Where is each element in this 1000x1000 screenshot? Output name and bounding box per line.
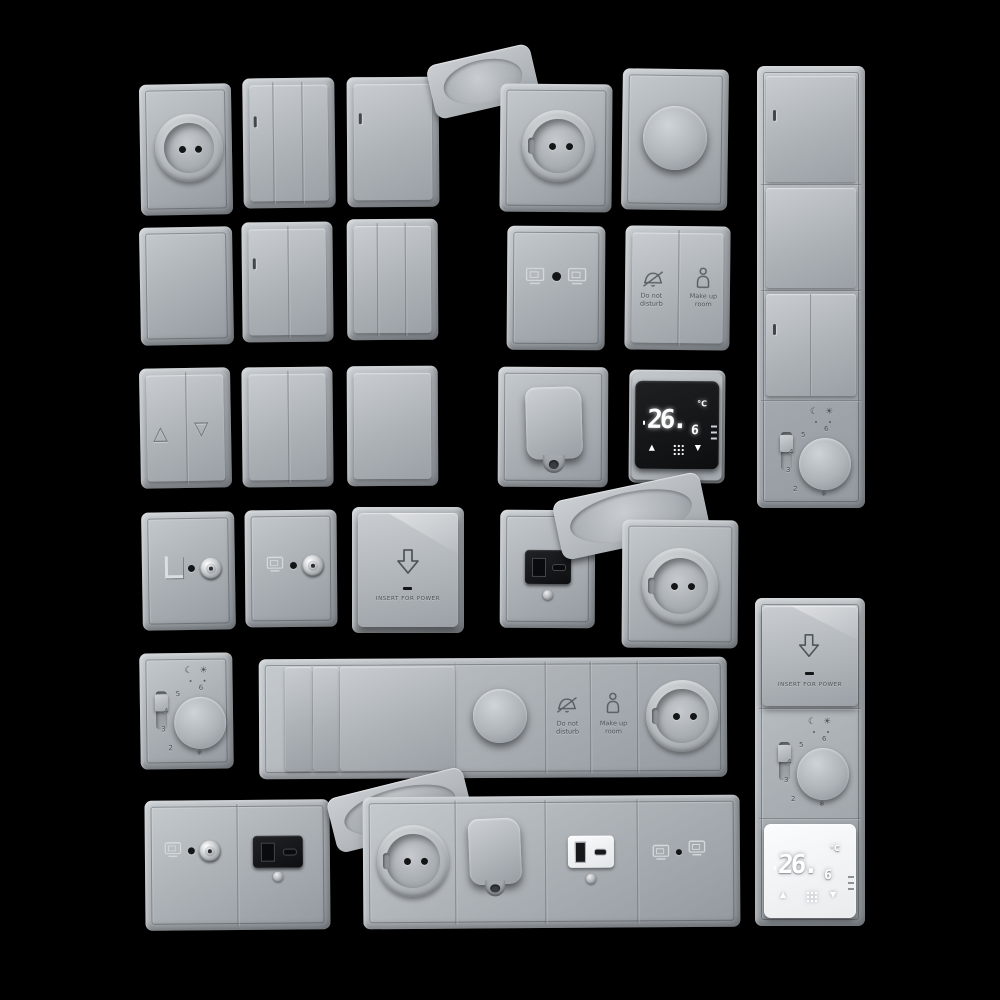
temperature-value: 26. xyxy=(646,405,686,435)
temperature-value: 26. xyxy=(777,850,817,880)
make-up-room-icon xyxy=(603,691,623,715)
usb-a-port xyxy=(532,558,546,577)
side-buttons xyxy=(848,876,854,894)
switch-rocker xyxy=(354,84,433,201)
socket-recess xyxy=(655,689,709,743)
switch-rocker xyxy=(766,76,856,182)
socket-ground-slot xyxy=(648,578,655,594)
temperature-decimal: 6 xyxy=(691,423,700,438)
jack-hole xyxy=(290,562,297,569)
temperature-dial xyxy=(799,438,851,490)
jack-hole xyxy=(188,847,195,854)
shutter-down-icon: ▽ xyxy=(194,418,209,440)
dial-number: 2 xyxy=(791,795,795,803)
plate-socket-lidded xyxy=(499,84,612,213)
plate-switch-2gang xyxy=(241,222,333,343)
dial-number: 5 xyxy=(799,741,803,749)
temp-up-button: ▲ xyxy=(649,443,655,452)
panel-vertical-multiswitch: ☾ ☀ 6 5 4 3 2 ❄ xyxy=(757,66,865,508)
socket-ground-slot xyxy=(528,138,535,154)
plate-keycard-holder: INSERT FOR POWER xyxy=(352,507,464,633)
center-jack-hole xyxy=(552,272,561,281)
do-not-disturb-label: Do not disturb xyxy=(545,719,590,735)
temperature-decimal: 6 xyxy=(824,868,833,883)
dial-number: 4 xyxy=(789,448,793,456)
dial-thermostat: ☾ ☀ 6 5 4 3 2 ❄ xyxy=(140,662,231,763)
temperature-dial xyxy=(797,748,849,800)
section-divider xyxy=(761,184,861,186)
tv-jack-icon xyxy=(651,843,671,861)
switch-indicator xyxy=(773,110,776,121)
day-mode-icon: ☀ xyxy=(825,407,833,417)
temperature-unit: °C xyxy=(697,399,707,408)
menu-grid-icon xyxy=(806,891,817,902)
socket-pin-hole xyxy=(690,713,697,720)
panel-horizontal-combination: Do not disturb Make up room xyxy=(259,657,728,779)
socket-ground-slot xyxy=(652,708,659,724)
plate-double-tv-usb xyxy=(144,799,330,931)
panel-horizontal-outlets xyxy=(363,795,741,930)
socket-outlet xyxy=(522,110,595,183)
tv-jack-icon xyxy=(524,266,546,286)
switch-rocker-wide xyxy=(340,666,456,771)
plate-switch-1gang xyxy=(347,77,440,208)
switch-rocker-group xyxy=(249,85,328,202)
dial-number: 6 xyxy=(822,735,826,743)
dial-number: 6 xyxy=(824,425,828,433)
do-not-disturb-label: Do not disturb xyxy=(629,291,674,308)
day-mode-icon: ☀ xyxy=(823,717,831,727)
frost-symbol: ❄ xyxy=(197,749,203,757)
tv-jack-icon xyxy=(163,840,183,858)
usb-c-port xyxy=(594,849,607,856)
socket-outlet xyxy=(377,825,450,898)
socket-recess xyxy=(163,122,214,173)
mode-dot xyxy=(204,680,206,682)
cable-outlet-cover xyxy=(525,386,583,460)
l-marking xyxy=(165,556,183,578)
plate-switch-3gang xyxy=(242,77,336,208)
temp-down-button: ▼ xyxy=(695,443,701,452)
usb-a-port xyxy=(575,842,586,863)
label-line: Do not xyxy=(641,292,663,300)
section-divider xyxy=(761,400,861,402)
coax-center xyxy=(208,849,212,853)
plate-tv-socket xyxy=(244,510,337,628)
label-line: Make up xyxy=(600,719,627,727)
socket-pin-hole xyxy=(549,143,556,150)
dial-number: 2 xyxy=(168,744,173,752)
screw xyxy=(273,872,283,882)
dial-number: 5 xyxy=(176,690,181,698)
socket-ground-slot xyxy=(383,853,390,869)
socket-pin-hole xyxy=(688,583,695,590)
day-mode-icon: ☀ xyxy=(199,666,207,676)
screw xyxy=(586,874,596,884)
make-up-room-icon xyxy=(693,266,713,290)
socket-pin-hole xyxy=(673,713,680,720)
plate-digital-thermostat-black: 26. 6 °C ▲ ▼ xyxy=(629,370,726,484)
mode-dot xyxy=(829,421,831,423)
switch-rocker xyxy=(766,188,856,288)
switch-indicator xyxy=(254,116,257,127)
socket-recess xyxy=(531,119,585,173)
socket-pin-hole xyxy=(566,143,573,150)
dial-number: 2 xyxy=(793,485,797,493)
night-mode-icon: ☾ xyxy=(810,407,818,417)
plate-hotel-switch: Do not disturb Make up room xyxy=(624,225,730,350)
switch-rocker-slim xyxy=(285,667,313,771)
label-line: room xyxy=(695,300,712,308)
dial-number: 3 xyxy=(161,725,166,733)
socket-pin-hole xyxy=(671,583,678,590)
temperature-dial xyxy=(174,696,227,749)
usb-module-white xyxy=(568,836,614,868)
plate-shutter-switch: △ ▽ xyxy=(139,367,232,489)
frost-symbol: ❄ xyxy=(819,800,825,808)
screw xyxy=(543,590,553,600)
shutter-up-icon: △ xyxy=(153,422,168,444)
jack-hole xyxy=(188,565,195,572)
temperature-unit: °C xyxy=(830,844,840,853)
do-not-disturb-icon xyxy=(555,694,579,716)
plate-switch-2gang xyxy=(241,367,333,488)
label-line: room xyxy=(605,727,622,735)
cable-exit-hole xyxy=(549,460,559,469)
plate-switch-3gang xyxy=(347,219,439,340)
plate-frame xyxy=(145,232,228,339)
insert-arrow-icon xyxy=(796,632,822,660)
display-mode-dot xyxy=(774,866,776,870)
frost-symbol: ❄ xyxy=(821,490,827,498)
night-mode-icon: ☾ xyxy=(808,717,816,727)
label-line: Do not xyxy=(557,720,579,728)
dimmer-knob xyxy=(473,689,527,743)
plate-dial-thermostat: ☾ ☀ 6 5 4 3 2 ❄ xyxy=(139,652,234,769)
plate-cable-outlet xyxy=(498,367,609,488)
insert-for-power-label: INSERT FOR POWER xyxy=(760,682,860,688)
section-divider xyxy=(759,818,861,820)
thermostat-display: 26. 6 °C ▲ ▼ xyxy=(635,381,720,470)
keycard-led xyxy=(403,587,412,590)
dial-number: 4 xyxy=(164,707,169,715)
switch-indicator xyxy=(773,324,776,335)
temp-up-button: ▲ xyxy=(780,890,786,899)
jack-hole xyxy=(676,849,682,855)
usb-module xyxy=(253,835,303,867)
socket-pin-hole xyxy=(421,858,428,865)
render-canvas: ☾ ☀ 6 5 4 3 2 ❄ xyxy=(0,0,1000,1000)
dial-number: 6 xyxy=(199,684,204,692)
socket-pin-hole xyxy=(179,146,186,153)
section-divider xyxy=(759,708,861,710)
socket-outlet xyxy=(646,680,718,752)
plate-switch-1gang xyxy=(347,366,439,486)
socket-pin-hole xyxy=(195,146,202,153)
thermostat-display-white: 26. 6 °C ▲ ▼ xyxy=(764,824,856,918)
switch-rocker xyxy=(354,373,432,479)
switch-indicator xyxy=(359,113,362,124)
mode-dot xyxy=(827,731,829,733)
dial-thermostat: ☾ ☀ 6 5 4 3 2 ❄ xyxy=(766,404,856,504)
switch-indicator xyxy=(253,258,256,269)
insert-for-power-label: INSERT FOR POWER xyxy=(358,596,458,602)
temp-down-button: ▼ xyxy=(830,890,836,899)
label-line: disturb xyxy=(556,728,579,736)
panel-vertical-hotel: INSERT FOR POWER ☾ ☀ 6 5 4 3 2 ❄ 26. 6 °… xyxy=(755,598,865,926)
dial-number: 3 xyxy=(786,466,790,474)
cable-exit-hole xyxy=(490,884,500,892)
socket-outlet xyxy=(642,548,719,625)
do-not-disturb-icon xyxy=(641,268,665,290)
plate-socket-round xyxy=(139,83,233,216)
switch-rocker-slim xyxy=(313,667,340,771)
rocker-divider xyxy=(810,294,812,396)
dial-thermostat: ☾ ☀ 6 5 4 3 2 ❄ xyxy=(764,714,854,814)
socket-recess xyxy=(652,558,709,615)
tv-jack-icon xyxy=(265,555,285,573)
plate-tv-socket xyxy=(141,511,236,630)
night-mode-icon: ☾ xyxy=(184,666,192,676)
insert-arrow-icon xyxy=(394,547,422,577)
plate-socket-lidded xyxy=(622,520,739,649)
make-up-room-label: Make up room xyxy=(591,719,636,735)
label-line: disturb xyxy=(640,300,663,308)
coax-center xyxy=(209,567,213,571)
socket-pin-hole xyxy=(404,858,411,865)
switch-rocker-group xyxy=(354,226,432,333)
section-divider xyxy=(761,290,861,292)
usb-c-port xyxy=(283,848,297,855)
dial-number: 5 xyxy=(801,431,805,439)
plate-frame xyxy=(513,232,600,345)
display-mode-dot xyxy=(643,421,645,425)
coax-connector xyxy=(199,840,221,862)
coax-center xyxy=(311,564,315,568)
mode-dot xyxy=(813,731,815,733)
plate-blank xyxy=(139,226,234,346)
socket-recess xyxy=(386,834,440,888)
coax-connector xyxy=(302,555,324,577)
dial-number: 4 xyxy=(787,758,791,766)
side-buttons xyxy=(711,425,717,443)
dial-number: 3 xyxy=(784,776,788,784)
mode-dot xyxy=(815,421,817,423)
keycard-led xyxy=(805,672,814,675)
plate-media-socket xyxy=(507,226,606,351)
usb-a-port xyxy=(261,843,275,862)
plate-dimmer xyxy=(621,68,729,210)
mode-dot xyxy=(190,680,192,682)
make-up-room-label: Make up room xyxy=(681,292,726,309)
cable-outlet-cover xyxy=(468,817,523,885)
tv-jack-icon xyxy=(566,266,588,286)
usb-c-port xyxy=(552,564,566,571)
tv-jack-icon xyxy=(687,839,707,857)
label-line: Make up xyxy=(690,292,718,300)
menu-grid-icon xyxy=(673,444,684,455)
